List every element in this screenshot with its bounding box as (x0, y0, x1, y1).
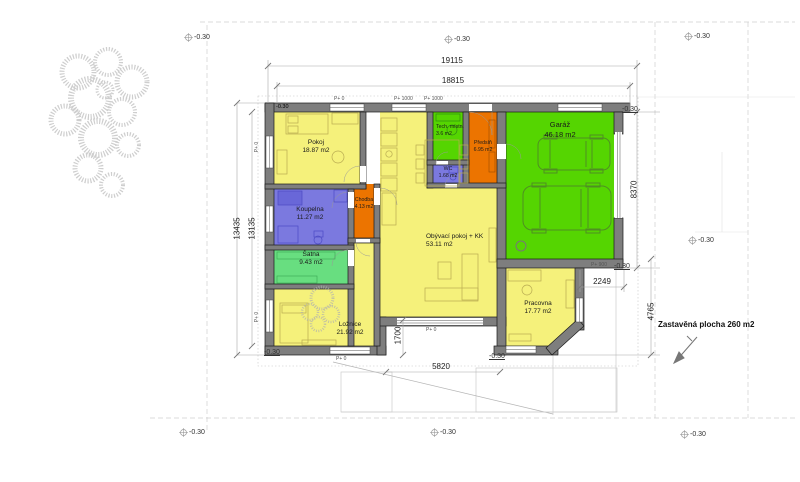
room-chodba (354, 184, 374, 238)
parapet-label: P+ 0 (254, 312, 260, 322)
parapet-label: P+ 1000 (394, 96, 413, 102)
survey-point-icon (430, 428, 439, 437)
room-label-tech: Tech. místn.3.6 m2 (436, 124, 476, 138)
dim-4765: 4765 (647, 290, 656, 334)
elevation-marker: -0.30 (680, 430, 706, 439)
dim-5820: 5820 (419, 362, 463, 371)
dim-1700: 1700 (394, 314, 403, 358)
elevation-marker: -0.30 (430, 428, 456, 437)
corner-level-label: -0.30 (276, 104, 289, 110)
survey-point-icon (688, 236, 697, 245)
room-label-pracovna: Pracovna17.77 m2 (505, 300, 571, 317)
parapet-label: P+ 1000 (424, 96, 443, 102)
dim-13135: 13135 (248, 207, 257, 251)
survey-point-icon (680, 430, 689, 439)
survey-point-icon (684, 32, 693, 41)
elevation-marker: -0.30 (184, 33, 210, 42)
elevation-marker: -0.30 (179, 428, 205, 437)
north-arrow-icon (674, 336, 697, 363)
room-label-pokoj: Pokoj18.87 m2 (276, 139, 356, 156)
elevation-marker: -0.30 (684, 32, 710, 41)
room-label-garaz: Garáž46.18 m2 (520, 120, 600, 140)
elevation-marker: -0.30 (444, 35, 470, 44)
dim-2249: 2249 (580, 277, 624, 286)
parapet-label: P+ 900 (591, 262, 607, 268)
room-label-loznice: Ložnice21.92 m2 (310, 321, 390, 338)
parapet-label: P+ 0 (254, 142, 260, 152)
elevation-marker: -0.30 (614, 263, 630, 270)
elevation-marker: -0.30 (622, 106, 638, 113)
tree-sketch (51, 49, 147, 196)
elevation-marker: -0.30 (489, 353, 505, 360)
room-label-satna: Šatna9.43 m2 (271, 251, 351, 268)
room-label-wc: WC1.68 m2 (430, 166, 466, 180)
floor-plan: Pokoj18.87 m2 Koupelna11.27 m2 Šatna9.43… (0, 0, 800, 482)
room-loznice-entry (354, 238, 374, 289)
dim-8370: 8370 (630, 168, 639, 212)
parapet-label: P+ 0 (426, 327, 436, 333)
plan-drawing (0, 0, 800, 482)
dim-19115: 19115 (430, 56, 474, 65)
elevation-marker: -0.30 (688, 236, 714, 245)
built-area-label: Zastavěná plocha 260 m2 (658, 320, 755, 329)
dim-13435: 13435 (233, 207, 242, 251)
dim-18815: 18815 (431, 76, 475, 85)
parapet-label: P+ 0 (334, 96, 344, 102)
elevation-marker: -0.30 (264, 349, 280, 356)
room-label-chodba: Chodba4.13 m2 (334, 197, 394, 211)
survey-point-icon (184, 33, 193, 42)
room-label-obyvaci: Obývací pokoj + KK53.11 m2 (426, 233, 506, 250)
parapet-label: P+ 0 (336, 356, 346, 362)
survey-point-icon (179, 428, 188, 437)
neighbor-lines (637, 97, 795, 232)
room-label-predsin: Předsíň6.95 m2 (463, 140, 503, 154)
survey-point-icon (444, 35, 453, 44)
